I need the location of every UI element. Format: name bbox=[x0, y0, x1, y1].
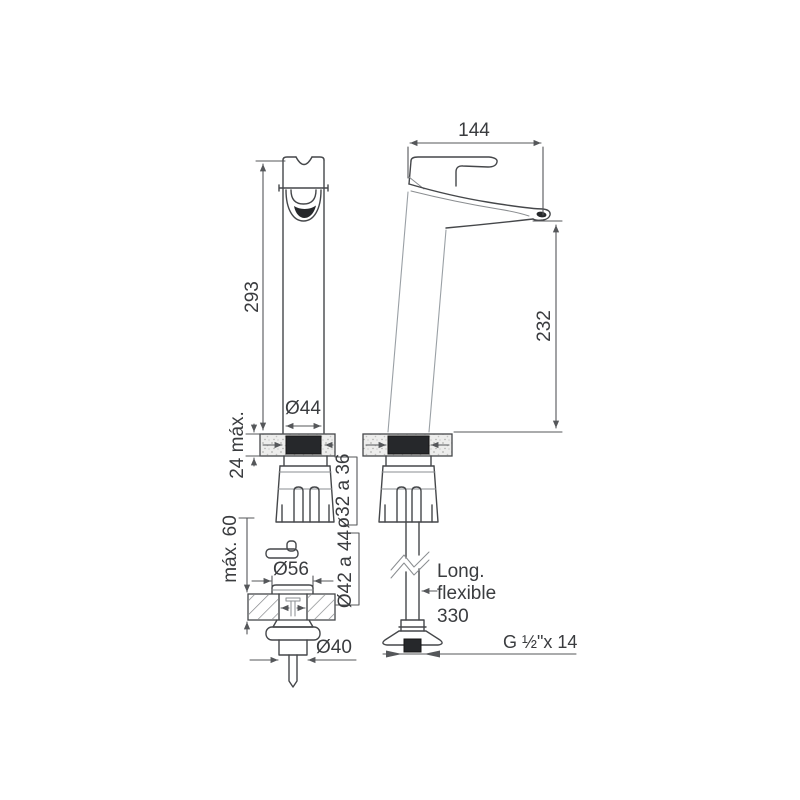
dim-label-spout-reach: 144 bbox=[458, 120, 490, 141]
dim-label-deck-thickness: 24 máx. bbox=[227, 411, 248, 479]
front-mounting-deck bbox=[260, 434, 335, 456]
front-spout-inner bbox=[291, 190, 316, 204]
side-nut-collar bbox=[383, 456, 434, 466]
drain-detail: Ø56 Ø40 máx. 60 Ø42 a 44 bbox=[220, 515, 359, 687]
dimension-spout-reach: 144 bbox=[408, 120, 543, 215]
dimension-mounting-hole: ø32 a 36 bbox=[333, 454, 357, 529]
drain-body bbox=[279, 640, 307, 655]
front-view-body bbox=[279, 157, 328, 433]
front-nut-skirt bbox=[276, 466, 334, 522]
hose-break-zigzag-1 bbox=[391, 552, 429, 570]
dim-label-counter-thickness: máx. 60 bbox=[220, 515, 241, 583]
front-nut-tabs bbox=[282, 505, 329, 522]
counter-hatch-right bbox=[308, 595, 334, 619]
side-nut-slot-1 bbox=[397, 487, 406, 522]
dimension-total-height: 293 bbox=[242, 161, 285, 430]
fitting-collar bbox=[399, 620, 426, 631]
faucet-technical-drawing: 293 Ø44 24 máx. ø32 a 36 bbox=[0, 0, 800, 800]
side-deck-hole-dark bbox=[388, 436, 429, 454]
dim-label-body-diameter: Ø44 bbox=[285, 398, 321, 419]
dimension-body-diameter: Ø44 bbox=[285, 398, 321, 426]
dim-label-total-height: 293 bbox=[242, 281, 263, 313]
side-nut-skirt bbox=[379, 466, 438, 522]
hose-label-line1: Long. bbox=[437, 561, 485, 582]
front-nut-collar bbox=[280, 456, 330, 466]
side-nut-tabs bbox=[385, 505, 432, 522]
front-handle-notch bbox=[296, 157, 312, 165]
dim-label-drain-flange: Ø56 bbox=[273, 559, 309, 580]
front-nut-slot-1 bbox=[294, 487, 303, 522]
hose-label-line2: flexible bbox=[437, 583, 496, 604]
fitting-dark-core bbox=[404, 639, 421, 652]
hose-end-fitting: G ½"x 14 bbox=[383, 620, 578, 658]
front-body-top-right bbox=[312, 157, 324, 160]
thread-arrow-right bbox=[424, 651, 440, 658]
dim-label-thread: G ½"x 14 bbox=[503, 632, 577, 652]
dimension-deck-thickness: 24 máx. bbox=[227, 411, 261, 479]
side-mounting-deck bbox=[363, 434, 452, 456]
hose-upper-segment bbox=[406, 522, 419, 558]
front-body-top-left bbox=[283, 157, 296, 160]
side-nut-rings bbox=[381, 472, 436, 489]
side-body-back-edge bbox=[429, 230, 446, 432]
front-nut-rings bbox=[278, 472, 332, 489]
dim-label-drain-hole: Ø42 a 44 bbox=[335, 529, 356, 608]
front-mounting-nut bbox=[276, 456, 334, 522]
dimension-spout-height: 232 bbox=[454, 221, 562, 432]
counter-hatch-left bbox=[249, 595, 278, 619]
front-aerator-dark bbox=[294, 206, 316, 219]
hose-label-line3: 330 bbox=[437, 606, 469, 627]
side-spout-top-inner bbox=[411, 191, 529, 216]
side-spout-top bbox=[409, 184, 550, 220]
side-spout-underside bbox=[446, 219, 533, 228]
drain-tailpiece bbox=[289, 655, 297, 687]
drain-locknut-top bbox=[273, 620, 313, 627]
side-aerator-dark bbox=[536, 211, 547, 218]
dim-24-ticks bbox=[246, 434, 261, 456]
side-mounting-nut bbox=[379, 456, 438, 522]
side-view-body bbox=[388, 157, 550, 432]
dim-label-spout-height: 232 bbox=[534, 310, 555, 342]
flexible-hose: Long. flexible 330 bbox=[391, 522, 496, 627]
drain-locknut-flange bbox=[266, 627, 320, 640]
technical-drawing-page: 293 Ø44 24 máx. ø32 a 36 bbox=[0, 0, 800, 800]
dim-label-drain-outlet: Ø40 bbox=[316, 637, 352, 658]
hose-lower-segment bbox=[406, 569, 419, 620]
side-nut-slot-2 bbox=[412, 487, 421, 522]
side-body-front-edge bbox=[388, 192, 408, 432]
front-deck-hole-dark bbox=[286, 436, 321, 454]
dim-label-mounting-hole: ø32 a 36 bbox=[333, 454, 354, 529]
thread-arrow-left bbox=[386, 651, 402, 658]
side-lever-handle bbox=[411, 157, 497, 186]
side-rear-edge bbox=[409, 161, 411, 184]
front-nut-slot-2 bbox=[310, 487, 319, 522]
